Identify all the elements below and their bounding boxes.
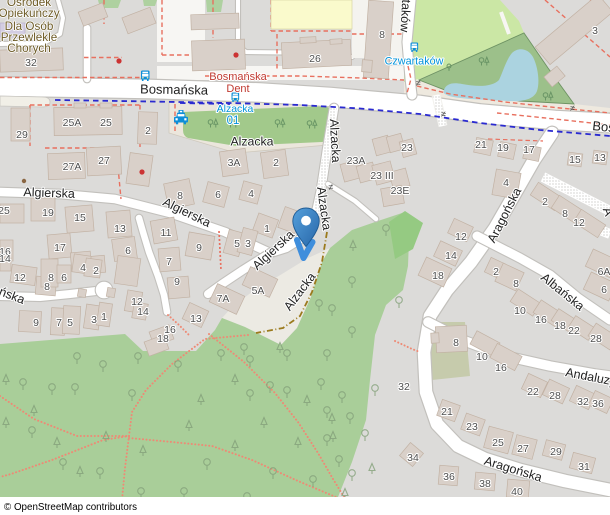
svg-text:8: 8 <box>562 208 568 220</box>
svg-text:25: 25 <box>0 205 10 217</box>
svg-text:2: 2 <box>273 157 279 169</box>
svg-text:28: 28 <box>590 333 602 345</box>
svg-text:© OpenStreetMap contributors: © OpenStreetMap contributors <box>4 502 137 513</box>
svg-text:13: 13 <box>114 223 126 235</box>
svg-text:25: 25 <box>100 117 112 129</box>
svg-text:2: 2 <box>493 266 499 278</box>
svg-text:18: 18 <box>432 270 444 282</box>
svg-text:40: 40 <box>511 486 523 498</box>
svg-text:13: 13 <box>190 313 202 325</box>
svg-text:7: 7 <box>166 256 172 268</box>
svg-text:23 III: 23 III <box>370 170 393 182</box>
svg-text:Bosmańska: Bosmańska <box>140 81 209 97</box>
svg-text:17: 17 <box>523 144 535 156</box>
svg-text:3: 3 <box>91 314 97 326</box>
svg-text:14: 14 <box>137 306 149 318</box>
svg-text:01: 01 <box>227 115 240 127</box>
svg-text:6A: 6A <box>598 266 610 278</box>
svg-text:32: 32 <box>577 396 589 408</box>
svg-text:31: 31 <box>578 461 590 473</box>
svg-text:8: 8 <box>48 272 54 284</box>
svg-text:6: 6 <box>215 189 221 201</box>
svg-text:6: 6 <box>601 284 607 296</box>
svg-text:1: 1 <box>264 223 270 235</box>
svg-text:Chorych: Chorych <box>7 42 51 55</box>
svg-text:21: 21 <box>475 139 487 151</box>
svg-text:Opiekuńczy: Opiekuńczy <box>0 7 60 20</box>
svg-text:Algierska: Algierska <box>23 185 75 201</box>
svg-text:12: 12 <box>573 217 585 229</box>
svg-text:14: 14 <box>0 253 11 265</box>
svg-text:9: 9 <box>33 317 39 329</box>
svg-text:4: 4 <box>503 177 509 189</box>
svg-text:34: 34 <box>407 452 419 464</box>
svg-text:8: 8 <box>513 278 519 290</box>
svg-text:22: 22 <box>527 386 539 398</box>
svg-text:Alzacka: Alzacka <box>327 119 343 163</box>
svg-text:11: 11 <box>161 227 172 239</box>
svg-text:18: 18 <box>554 320 566 332</box>
svg-text:23: 23 <box>401 142 413 154</box>
svg-text:1: 1 <box>101 311 107 323</box>
svg-text:32: 32 <box>25 57 37 69</box>
svg-text:Bosmańska: Bosmańska <box>209 71 267 83</box>
svg-text:16: 16 <box>495 362 507 374</box>
svg-text:32: 32 <box>398 381 410 393</box>
svg-text:18: 18 <box>157 333 169 345</box>
svg-text:36: 36 <box>443 471 455 483</box>
svg-text:22: 22 <box>568 325 580 337</box>
svg-text:25A: 25A <box>63 117 82 129</box>
svg-text:29: 29 <box>550 446 562 458</box>
svg-text:≠: ≠ <box>415 78 421 88</box>
svg-text:2: 2 <box>145 125 151 137</box>
svg-text:17: 17 <box>54 242 66 254</box>
svg-text:12: 12 <box>14 272 26 284</box>
svg-text:9: 9 <box>196 242 202 254</box>
svg-text:13: 13 <box>594 152 606 164</box>
svg-text:25: 25 <box>492 437 504 449</box>
svg-text:Dent: Dent <box>226 83 249 95</box>
svg-text:2: 2 <box>93 265 99 277</box>
svg-text:7: 7 <box>56 317 62 329</box>
svg-text:4: 4 <box>80 262 86 274</box>
svg-text:14: 14 <box>445 250 457 262</box>
svg-text:38: 38 <box>479 478 491 490</box>
svg-text:3: 3 <box>592 25 598 37</box>
svg-text:23: 23 <box>466 421 478 433</box>
svg-text:27: 27 <box>517 443 529 455</box>
svg-text:5: 5 <box>67 317 73 329</box>
svg-text:27: 27 <box>98 155 110 167</box>
svg-text:28: 28 <box>549 390 561 402</box>
svg-text:23E: 23E <box>391 185 410 197</box>
svg-text:16: 16 <box>535 314 547 326</box>
svg-text:7A: 7A <box>217 293 230 305</box>
svg-text:2: 2 <box>542 196 548 208</box>
svg-text:6: 6 <box>61 272 67 284</box>
svg-text:Alzacka: Alzacka <box>230 135 273 149</box>
svg-text:19: 19 <box>497 142 509 154</box>
svg-text:Czwartaków: Czwartaków <box>397 0 415 34</box>
svg-text:3: 3 <box>245 238 251 250</box>
svg-text:23A: 23A <box>347 155 366 167</box>
svg-text:5: 5 <box>234 238 240 250</box>
svg-text:8: 8 <box>453 337 459 349</box>
svg-text:15: 15 <box>74 212 86 224</box>
svg-text:3A: 3A <box>228 157 241 169</box>
svg-text:27A: 27A <box>63 161 82 173</box>
svg-text:19: 19 <box>42 207 54 219</box>
svg-text:15: 15 <box>569 154 581 166</box>
svg-text:12: 12 <box>455 231 467 243</box>
svg-text:8: 8 <box>177 190 183 202</box>
svg-text:10: 10 <box>514 305 526 317</box>
svg-text:36: 36 <box>592 398 604 410</box>
svg-text:4: 4 <box>248 188 254 200</box>
svg-text:26: 26 <box>309 53 321 65</box>
svg-text:Alzacka: Alzacka <box>217 103 254 115</box>
svg-text:21: 21 <box>441 406 453 418</box>
svg-text:9: 9 <box>174 276 180 288</box>
svg-text:6: 6 <box>125 245 131 257</box>
svg-text:10: 10 <box>476 351 488 363</box>
svg-text:29: 29 <box>16 129 28 141</box>
svg-text:5A: 5A <box>252 285 265 297</box>
svg-text:Czwartaków: Czwartaków <box>385 56 444 68</box>
svg-text:8: 8 <box>379 29 385 41</box>
